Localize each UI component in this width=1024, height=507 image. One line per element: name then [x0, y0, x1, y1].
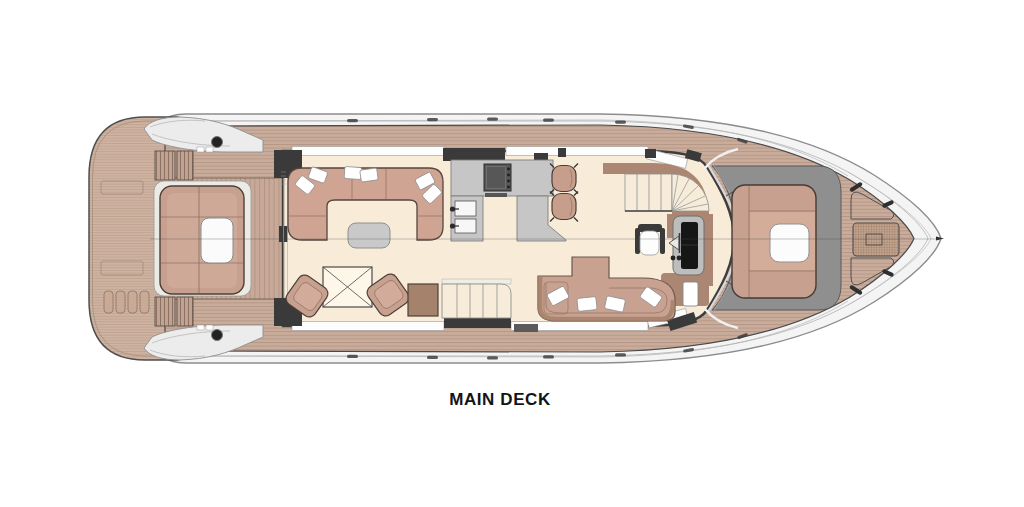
stern-cleat — [212, 137, 223, 148]
bar-stool — [550, 192, 578, 222]
throttle-knob — [677, 256, 682, 261]
stair-cabinet — [408, 284, 438, 316]
stair-treads-up — [625, 174, 672, 211]
side-door — [683, 282, 698, 306]
aft-cockpit-seating — [154, 181, 251, 296]
deck-plan-drawing — [0, 0, 1024, 507]
yacht-main-deck-plan: MAIN DECK — [0, 0, 1024, 507]
helm-chair — [635, 224, 665, 255]
deck-label: MAIN DECK — [449, 390, 551, 410]
bow-table — [770, 224, 809, 262]
anchor-windlass-hatch — [853, 223, 899, 256]
galley-step — [485, 193, 507, 197]
throttle-knob — [671, 256, 676, 261]
helm-display — [681, 222, 698, 269]
coffee-table — [348, 223, 390, 248]
stove-icon — [484, 164, 511, 191]
bar-stool — [550, 164, 578, 194]
bow-lounge — [732, 185, 816, 298]
stairs-to-lower-deck — [408, 279, 511, 318]
aft-cockpit-table — [201, 218, 233, 263]
stair-treads-down — [442, 284, 511, 318]
